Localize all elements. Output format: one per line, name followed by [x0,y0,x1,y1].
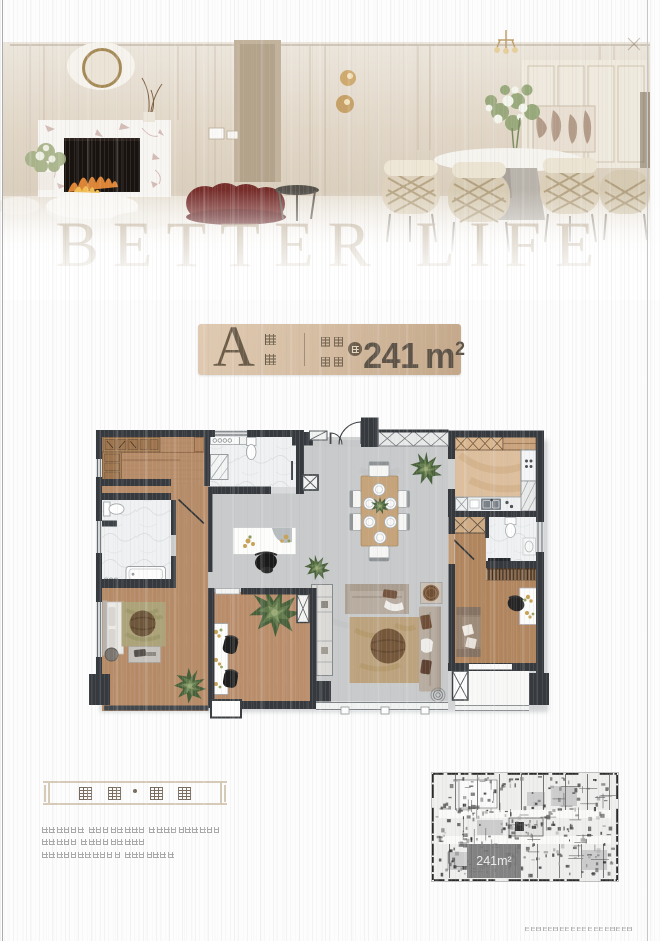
svg-text:241m²: 241m² [476,854,511,868]
svg-text:BETTER LIFE: BETTER LIFE [56,209,609,281]
